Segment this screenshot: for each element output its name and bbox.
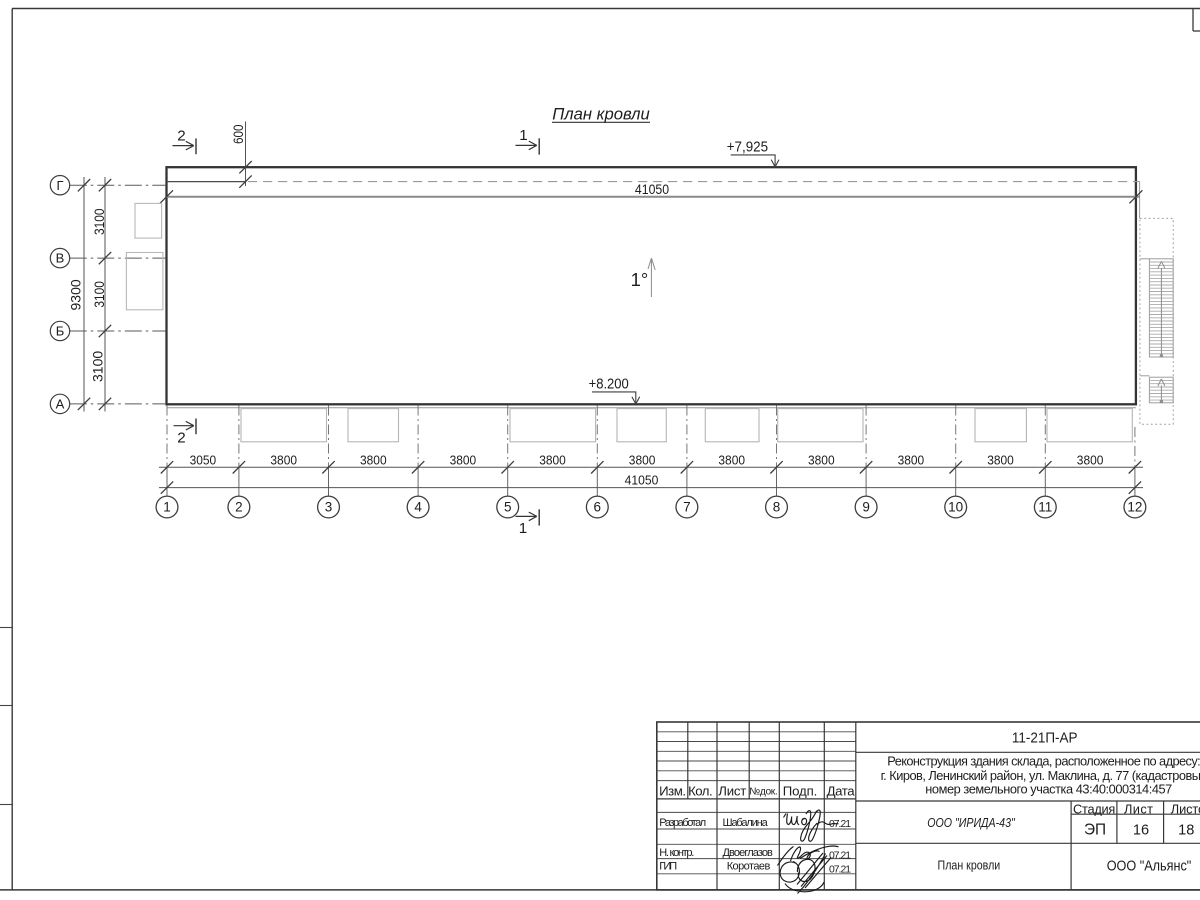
svg-text:Коротаев: Коротаев — [727, 861, 771, 873]
svg-text:3800: 3800 — [898, 452, 925, 467]
svg-text:№док.: №док. — [749, 787, 778, 798]
svg-text:Кол.: Кол. — [688, 783, 713, 798]
svg-text:3800: 3800 — [1077, 452, 1104, 467]
svg-text:3800: 3800 — [808, 452, 835, 467]
svg-text:Дата: Дата — [827, 783, 856, 798]
svg-text:3800: 3800 — [360, 452, 387, 467]
svg-text:41050: 41050 — [635, 182, 669, 197]
svg-text:4: 4 — [414, 500, 422, 515]
svg-text:07.21: 07.21 — [829, 850, 851, 861]
svg-text:ЭП: ЭП — [1084, 821, 1106, 838]
svg-text:Реконструкция здания склада, р: Реконструкция здания склада, расположенн… — [887, 753, 1200, 768]
svg-text:3800: 3800 — [629, 452, 656, 467]
svg-text:8: 8 — [773, 500, 781, 515]
svg-text:18: 18 — [1178, 822, 1194, 838]
svg-text:+7,925: +7,925 — [727, 139, 768, 155]
svg-text:07.21: 07.21 — [829, 864, 851, 875]
svg-text:3100: 3100 — [91, 281, 107, 308]
svg-text:11-21П-АР: 11-21П-АР — [1012, 730, 1078, 747]
svg-text:Разработал: Разработал — [659, 817, 706, 829]
svg-text:Лист: Лист — [1124, 801, 1153, 816]
svg-text:номер земельного участка 43:40: номер земельного участка 43:40:000314:45… — [925, 782, 1172, 797]
svg-text:ГИП: ГИП — [659, 860, 677, 872]
svg-text:Б: Б — [56, 324, 65, 339]
svg-text:1: 1 — [163, 500, 171, 515]
svg-text:2: 2 — [235, 500, 243, 515]
svg-text:2: 2 — [177, 430, 185, 447]
svg-text:3800: 3800 — [270, 452, 297, 467]
svg-text:9300: 9300 — [67, 279, 83, 310]
svg-text:ООО "ИРИДА-43": ООО "ИРИДА-43" — [927, 816, 1015, 830]
svg-text:Двоеглазов: Двоеглазов — [723, 847, 774, 859]
svg-text:3100: 3100 — [91, 208, 107, 235]
svg-text:12: 12 — [1127, 500, 1142, 515]
svg-text:3800: 3800 — [450, 452, 477, 467]
svg-text:3050: 3050 — [190, 452, 217, 467]
svg-text:В: В — [56, 251, 65, 266]
svg-text:3800: 3800 — [987, 452, 1014, 467]
svg-text:Н. контр.: Н. контр. — [659, 847, 694, 859]
svg-text:Лист: Лист — [718, 783, 746, 798]
svg-text:Изм.: Изм. — [659, 783, 686, 798]
svg-text:1°: 1° — [631, 269, 649, 290]
svg-text:9: 9 — [862, 500, 870, 515]
svg-text:10: 10 — [948, 500, 963, 515]
svg-text:+8.200: +8.200 — [589, 377, 629, 393]
svg-text:6: 6 — [594, 500, 602, 515]
svg-text:2: 2 — [177, 128, 185, 145]
svg-text:07.21: 07.21 — [829, 819, 851, 830]
svg-text:5: 5 — [504, 500, 512, 515]
svg-text:41050: 41050 — [625, 472, 659, 487]
svg-text:16: 16 — [1133, 822, 1149, 838]
svg-text:1: 1 — [519, 127, 527, 144]
svg-text:Шабалина: Шабалина — [723, 817, 769, 829]
svg-text:1: 1 — [519, 520, 527, 537]
svg-text:А: А — [56, 397, 65, 412]
svg-text:Листов: Листов — [1171, 801, 1200, 816]
svg-text:Стадия: Стадия — [1073, 801, 1115, 816]
svg-text:3: 3 — [325, 500, 333, 515]
svg-text:11: 11 — [1038, 500, 1052, 515]
svg-text:3800: 3800 — [718, 452, 745, 467]
svg-text:3800: 3800 — [539, 452, 566, 467]
svg-text:3100: 3100 — [90, 351, 106, 382]
svg-text:Подп.: Подп. — [783, 783, 818, 798]
svg-text:План кровли: План кровли — [552, 104, 650, 123]
svg-text:ООО "Альянс": ООО "Альянс" — [1107, 858, 1192, 875]
svg-text:Г: Г — [56, 178, 63, 193]
svg-text:7: 7 — [683, 500, 691, 515]
svg-text:План кровли: План кровли — [938, 858, 1001, 872]
svg-text:600: 600 — [231, 124, 246, 144]
